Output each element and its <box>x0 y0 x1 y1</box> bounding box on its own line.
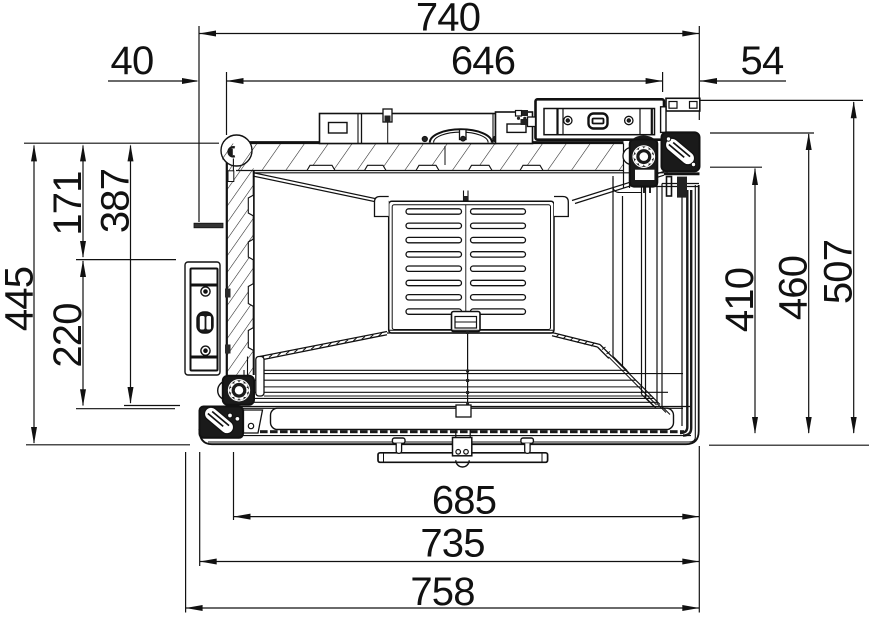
svg-text:54: 54 <box>741 39 784 83</box>
svg-text:387: 387 <box>94 169 138 233</box>
svg-text:735: 735 <box>420 522 484 566</box>
svg-text:740: 740 <box>416 0 480 40</box>
svg-text:646: 646 <box>451 39 515 83</box>
svg-text:171: 171 <box>46 171 90 235</box>
svg-text:220: 220 <box>46 303 90 367</box>
svg-text:445: 445 <box>0 267 42 331</box>
svg-text:685: 685 <box>432 479 496 523</box>
svg-text:507: 507 <box>817 240 861 304</box>
svg-text:460: 460 <box>772 256 816 320</box>
svg-text:40: 40 <box>111 39 154 83</box>
svg-text:758: 758 <box>410 570 474 614</box>
svg-text:410: 410 <box>718 268 762 332</box>
